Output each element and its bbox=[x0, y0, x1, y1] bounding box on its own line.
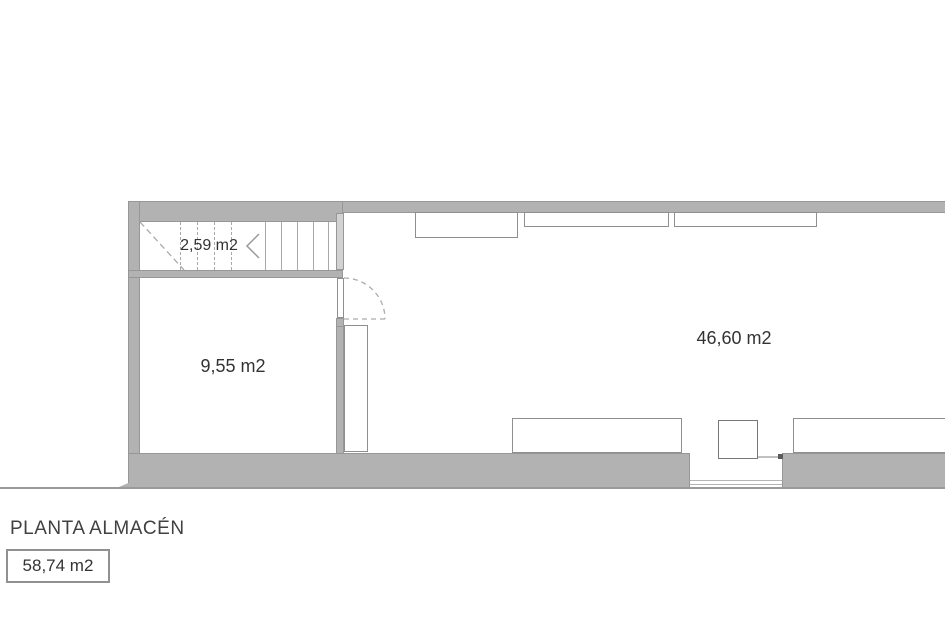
door-swing-arc bbox=[344, 278, 385, 319]
ground-line bbox=[0, 487, 945, 489]
stair-tread bbox=[265, 222, 266, 270]
wall-bottom-right bbox=[782, 453, 945, 488]
wall-under-stairs bbox=[128, 270, 343, 278]
wall-shelf-3 bbox=[674, 212, 817, 227]
stair-tread bbox=[313, 222, 314, 270]
wall-left bbox=[128, 201, 140, 488]
partition-wall bbox=[336, 326, 344, 455]
main-room-area-label: 46,60 m2 bbox=[684, 328, 784, 349]
wall-shelf-2 bbox=[524, 212, 669, 227]
partition-stair-side bbox=[336, 213, 344, 270]
tall-cabinet bbox=[344, 325, 368, 452]
total-area-box: 58,74 m2 bbox=[6, 549, 110, 583]
stair-area-label: 2,59 m2 bbox=[169, 237, 249, 255]
stair-tread bbox=[281, 222, 282, 270]
wall-shelf-1 bbox=[415, 212, 518, 238]
floor-plan-drawing: 2,59 m2 9,55 m2 46,60 m2 PLANTA ALMACÉN … bbox=[0, 0, 945, 630]
entrance-threshold-2 bbox=[690, 484, 782, 485]
door-leaf bbox=[337, 278, 344, 318]
wall-top-thick bbox=[128, 201, 343, 222]
stair-tread bbox=[297, 222, 298, 270]
total-area-value: 58,74 m2 bbox=[23, 556, 94, 576]
column-block bbox=[718, 420, 758, 459]
workbench-right bbox=[793, 418, 945, 453]
workbench-left bbox=[512, 418, 682, 453]
floor-plan-page: { "plan": { "title": "PLANTA ALMACÉN", "… bbox=[0, 0, 945, 630]
wall-bottom-left bbox=[128, 453, 690, 488]
plan-title: PLANTA ALMACÉN bbox=[10, 518, 185, 540]
stair-tread bbox=[328, 222, 329, 270]
storage-room-area-label: 9,55 m2 bbox=[183, 356, 283, 377]
entrance-threshold bbox=[690, 480, 782, 481]
